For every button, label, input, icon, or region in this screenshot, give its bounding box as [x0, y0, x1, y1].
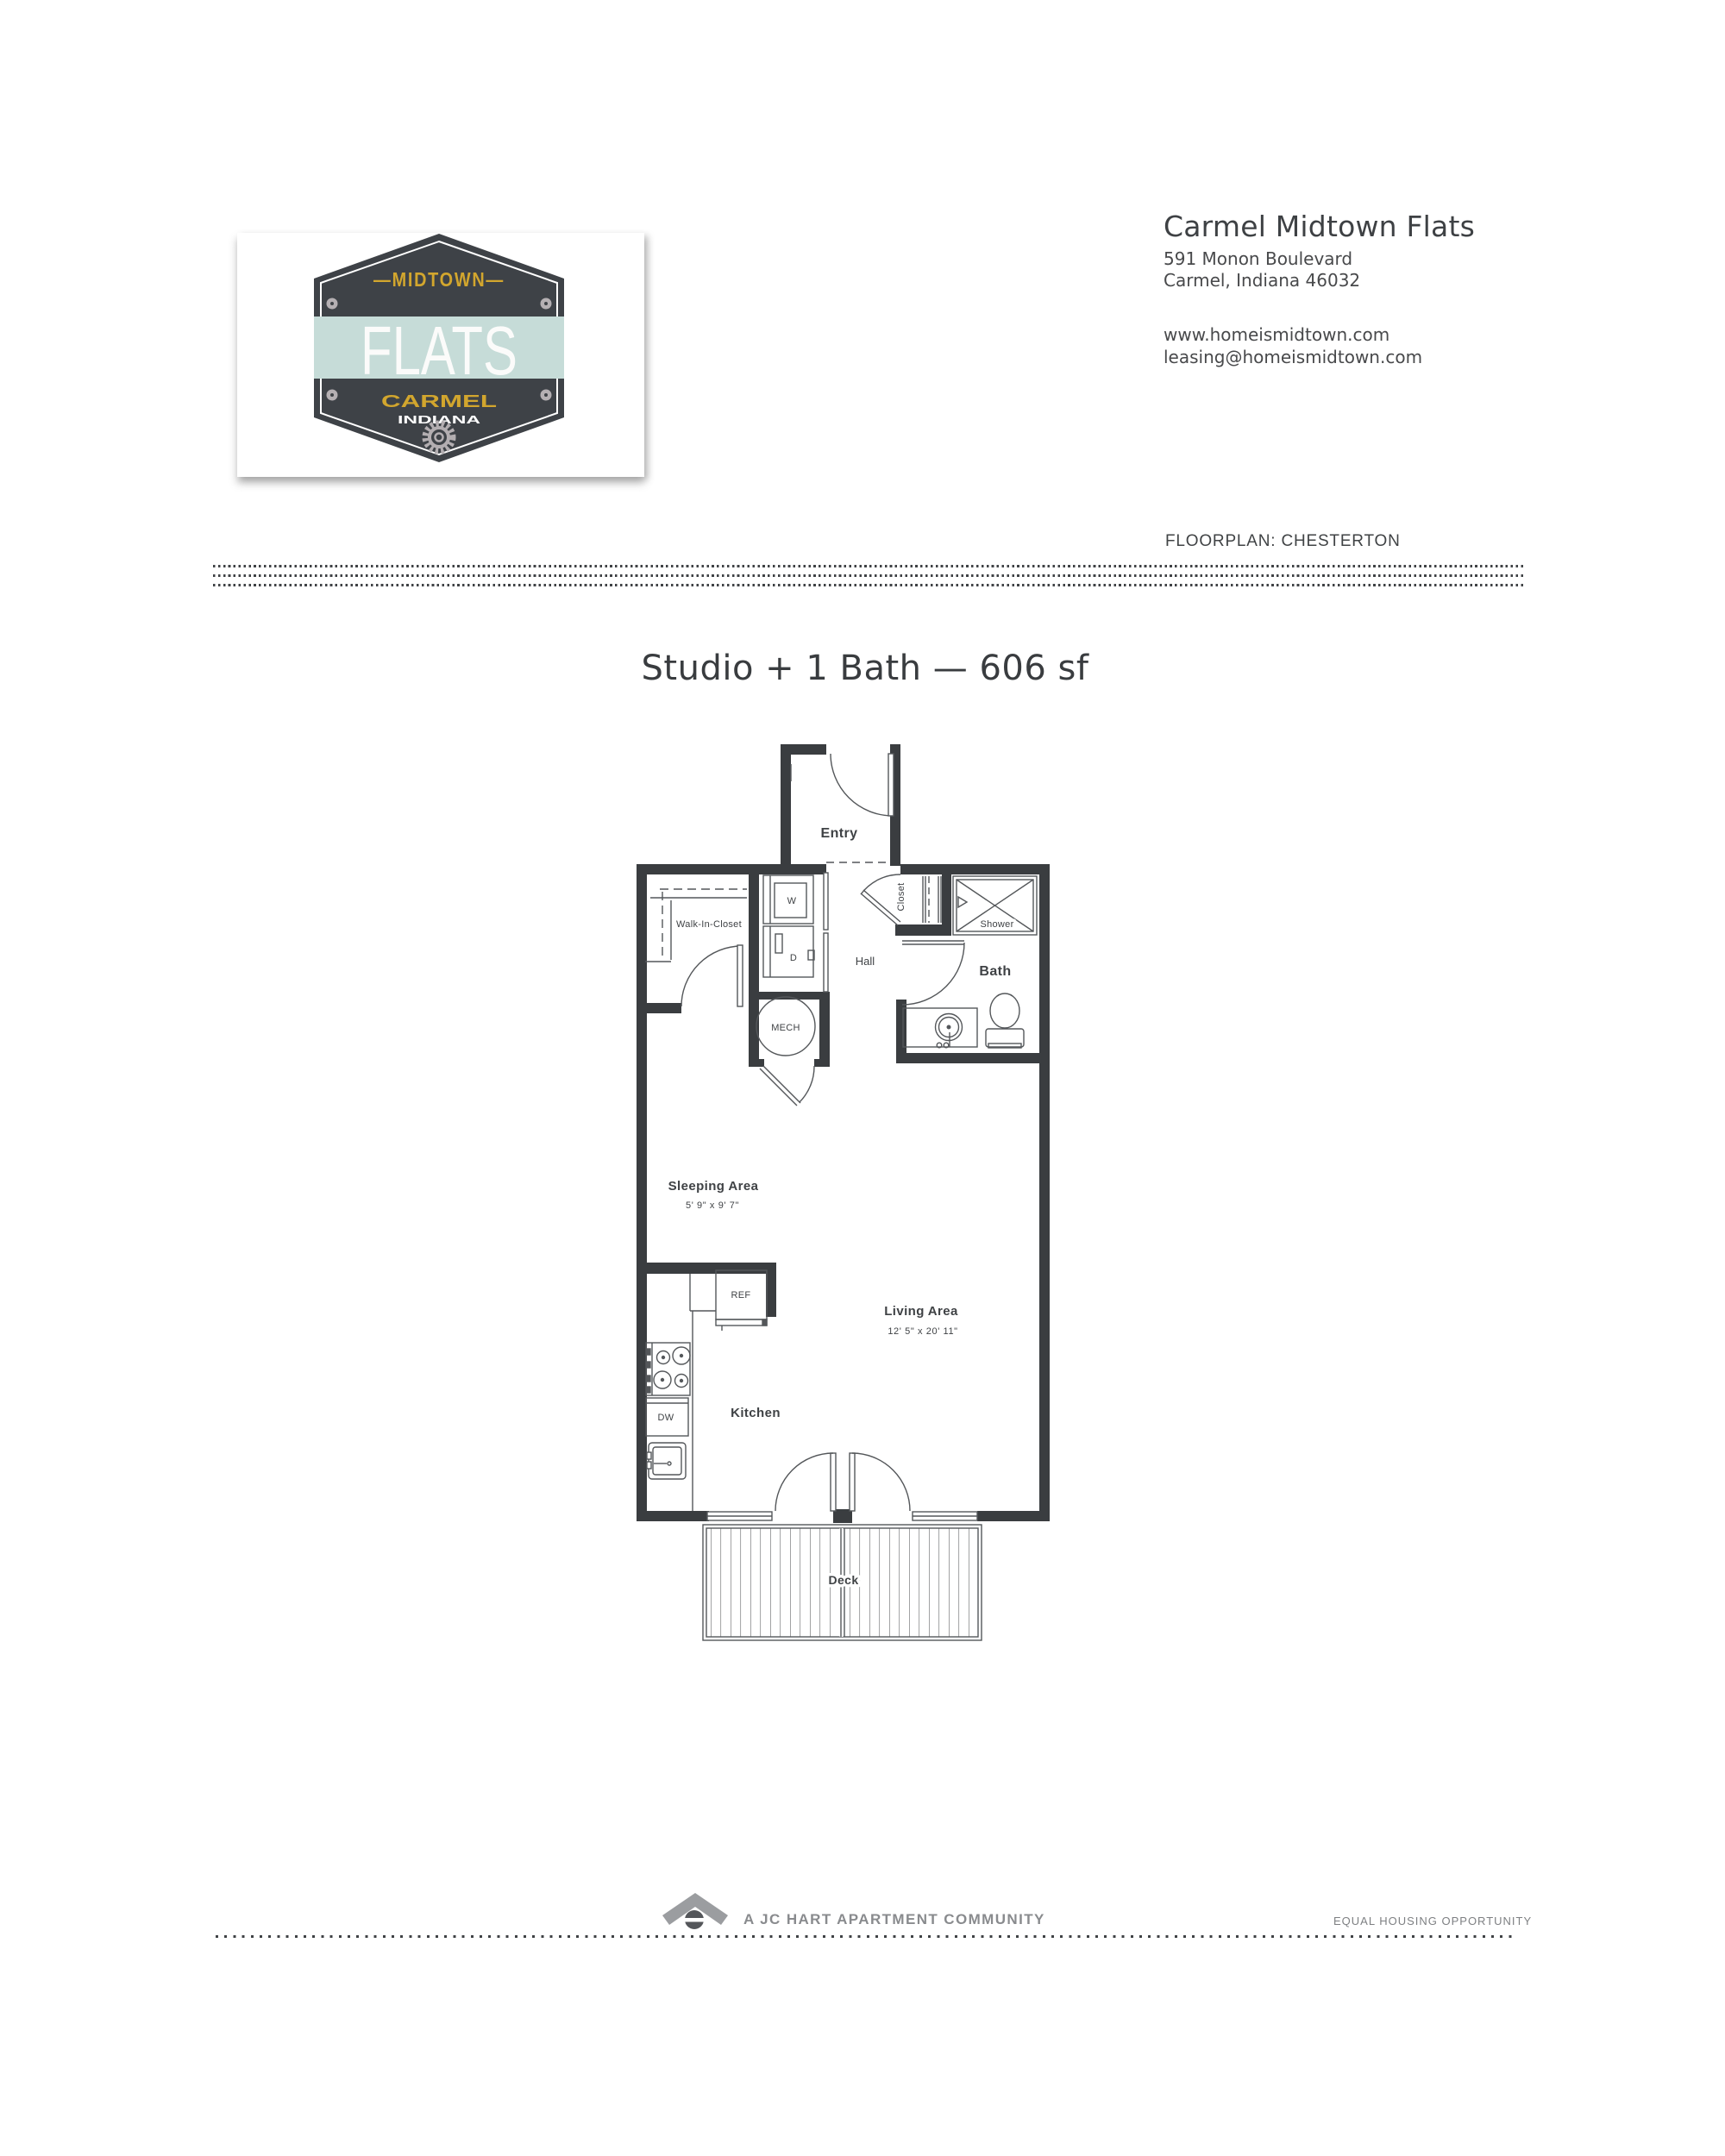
mech-label: MECH: [771, 1023, 800, 1033]
dotted-separator-bottom: [216, 1935, 1512, 1938]
living-area-dims: 12' 5" x 20' 11": [888, 1326, 957, 1337]
badge-flats-text: FLATS: [361, 312, 517, 389]
sleeping-area-label: Sleeping Area: [668, 1179, 759, 1194]
website-text: www.homeismidtown.com: [1164, 323, 1475, 346]
page-title: Studio + 1 Bath — 606 sf: [434, 649, 1296, 688]
header-info: Carmel Midtown Flats 591 Monon Boulevard…: [1164, 210, 1475, 368]
fridge-label: REF: [731, 1290, 751, 1300]
walk-in-closet-label: Walk-In-Closet: [676, 919, 742, 930]
bath-label: Bath: [979, 964, 1011, 979]
living-area-label: Living Area: [884, 1304, 958, 1319]
entry-label: Entry: [821, 826, 858, 841]
floorplan-name-label: FLOORPLAN: CHESTERTON: [1165, 532, 1401, 551]
walls: [637, 744, 1050, 1523]
sleeping-area-dims: 5' 9" x 9' 7": [686, 1200, 739, 1211]
badge-indiana-text: INDIANA: [398, 413, 481, 426]
fixtures-and-doors: [645, 754, 1037, 1640]
dryer-label: D: [790, 953, 797, 963]
property-name: Carmel Midtown Flats: [1164, 210, 1475, 243]
floorplan-drawing: Entry Walk-In-Closet W D Hall Closet Sho…: [604, 724, 1087, 1682]
washer-label: W: [787, 896, 797, 906]
floorplan-flyer-page: —MIDTOWN— FLATS CARMEL INDIANA Carmel Mi…: [0, 0, 1725, 2156]
address-line2: Carmel, Indiana 46032: [1164, 270, 1475, 291]
badge-midtown-text: —MIDTOWN—: [373, 268, 505, 291]
email-text: leasing@homeismidtown.com: [1164, 346, 1475, 368]
community-text: A JC HART APARTMENT COMMUNITY: [743, 1911, 1045, 1928]
address-line1: 591 Monon Boulevard: [1164, 248, 1475, 270]
deck-label: Deck: [828, 1573, 858, 1587]
midtown-flats-badge: —MIDTOWN— FLATS CARMEL INDIANA: [313, 233, 565, 463]
badge-carmel-text: CARMEL: [381, 392, 497, 411]
shower-label: Shower: [980, 919, 1013, 930]
equal-housing-text: EQUAL HOUSING OPPORTUNITY: [1333, 1915, 1532, 1927]
hall-label: Hall: [856, 955, 875, 968]
logo-card: —MIDTOWN— FLATS CARMEL INDIANA: [237, 233, 644, 477]
closet-label: Closet: [896, 883, 906, 912]
house-icon: [661, 1890, 731, 1934]
dishwasher-label: DW: [658, 1413, 674, 1423]
kitchen-label: Kitchen: [731, 1406, 781, 1420]
